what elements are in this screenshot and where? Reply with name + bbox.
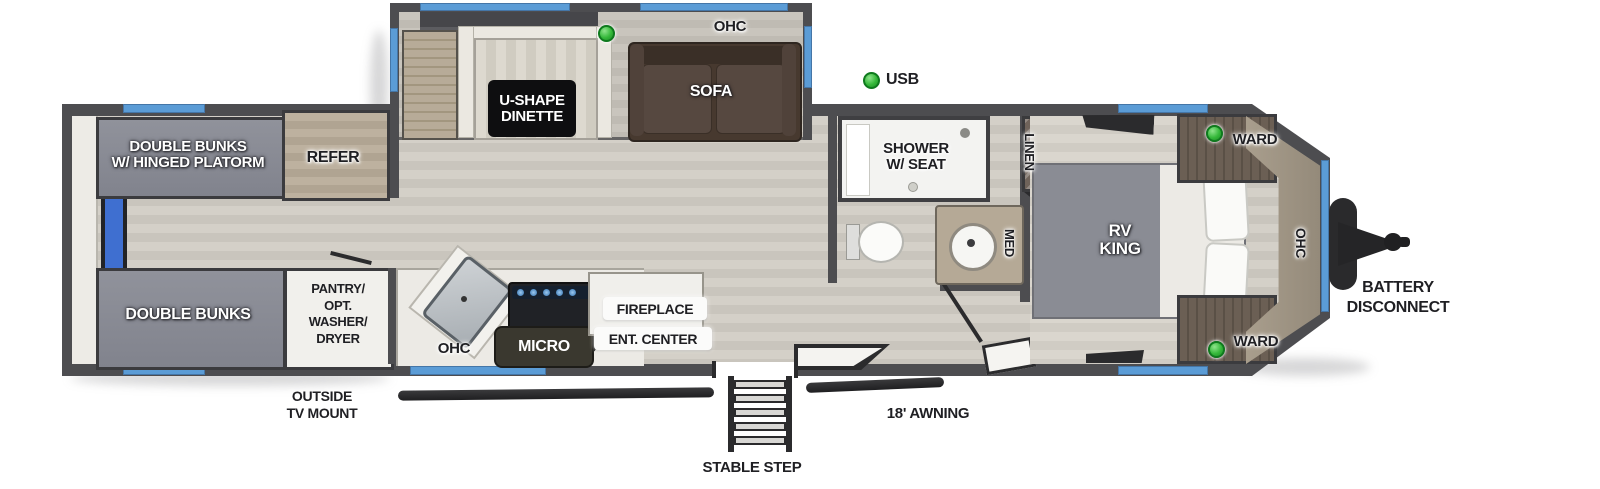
ward-bottom-indicator-dot [1208, 341, 1225, 358]
battery-label-line1: BATTERY [1347, 278, 1450, 298]
outside-tv-label-line1: OUTSIDE [287, 388, 358, 405]
pantry-label-line4: DRYER [309, 331, 368, 348]
ohc-dinette-label: OHC [714, 19, 746, 35]
wall-segment [390, 140, 399, 198]
step-tread [734, 380, 786, 389]
window [390, 28, 398, 92]
step-rail [786, 376, 792, 452]
vanity-faucet [967, 239, 975, 247]
stable-step-label: STABLE STEP [703, 460, 802, 476]
refer-label: REFER [307, 150, 360, 166]
door-jamb [712, 361, 716, 378]
ent-center-label: ENT. CENTER [609, 331, 698, 347]
battery-label-line2: DISCONNECT [1347, 298, 1450, 318]
bunk-top-label-line1: DOUBLE BUNKS [112, 139, 265, 155]
window [420, 3, 570, 11]
sofa-back [632, 46, 794, 64]
linen-label: LINEN [1021, 133, 1037, 171]
microwave: MICRO [494, 326, 594, 368]
dinette-bench [458, 26, 474, 138]
hitch-knob [1398, 237, 1410, 247]
rv-king-label-line1: RV [1099, 222, 1140, 240]
bunk-bottom-label: DOUBLE BUNKS [125, 307, 250, 323]
window [1118, 104, 1208, 113]
ward-bottom-label: WARD [1234, 334, 1279, 350]
step-tread [734, 394, 786, 403]
window [640, 3, 788, 11]
rv-king-label-line2: KING [1099, 240, 1140, 258]
window [804, 26, 812, 88]
bunk-ladder [101, 190, 127, 268]
shower-head [960, 128, 970, 138]
outside-tv-label: OUTSIDE TV MOUNT [287, 388, 358, 422]
shower-label-line2: W/ SEAT [883, 157, 949, 173]
bunk-top-label: DOUBLE BUNKS W/ HINGED PLATORM [112, 139, 265, 171]
step-tread [734, 422, 786, 431]
usb-indicator-dot [863, 72, 880, 89]
step-tread [734, 408, 786, 417]
sofa-armrest [782, 44, 796, 136]
shower-label: SHOWER W/ SEAT [883, 141, 949, 173]
fireplace-label: FIREPLACE [617, 301, 694, 317]
ent-center-plate: ENT. CENTER [594, 327, 712, 350]
battery-disconnect-label: BATTERY DISCONNECT [1347, 278, 1450, 318]
toilet [858, 221, 904, 263]
floorplan-canvas: U-SHAPE DINETTE MICRO FIREPLACE ENT. CEN… [0, 0, 1600, 489]
shower-label-line1: SHOWER [883, 141, 949, 157]
ward-top-indicator-dot [1206, 125, 1223, 142]
awning-bar [398, 387, 714, 400]
usb-label: USB [886, 72, 919, 88]
dinette-indicator-dot [598, 25, 615, 42]
step-tread [734, 436, 786, 445]
front-window [1321, 160, 1329, 312]
pantry-label-line2: OPT. [309, 298, 368, 315]
rear-wall-panel [72, 116, 98, 364]
micro-label: MICRO [518, 339, 570, 355]
ward-top-label: WARD [1233, 132, 1278, 148]
ohc-kitchen-label: OHC [438, 341, 470, 357]
vanity-sink [949, 223, 997, 271]
dinette-bench [596, 26, 612, 138]
pantry-label-line3: WASHER/ [309, 314, 368, 331]
sink-drain [461, 296, 467, 302]
outside-tv-label-line2: TV MOUNT [287, 405, 358, 422]
pantry-label: PANTRY/ OPT. WASHER/ DRYER [309, 281, 368, 347]
bathroom-wall [828, 116, 837, 283]
bunk-top-label-line2: W/ HINGED PLATORM [112, 155, 265, 171]
fireplace-plate: FIREPLACE [603, 297, 707, 320]
stove-burners [512, 286, 592, 299]
pantry-label-line1: PANTRY/ [309, 281, 368, 298]
slideout-wardrobe [402, 30, 458, 140]
sofa-armrest [630, 44, 644, 136]
window [123, 104, 205, 113]
awning-bar [806, 377, 944, 393]
shower-seat [846, 124, 870, 196]
rv-king-label: RV KING [1099, 222, 1140, 258]
entry-door-opening [714, 362, 794, 377]
med-label: MED [1001, 229, 1017, 257]
dinette-label-line2: DINETTE [501, 109, 563, 125]
sofa-label: SOFA [690, 84, 732, 100]
ohc-bedroom-label: OHC [1293, 228, 1309, 258]
awning-label: 18' AWNING [887, 406, 970, 422]
dinette-label-line1: U-SHAPE [499, 93, 564, 109]
shower-drain [908, 182, 918, 192]
window [1118, 366, 1208, 375]
dinette-label-box: U-SHAPE DINETTE [488, 80, 576, 137]
